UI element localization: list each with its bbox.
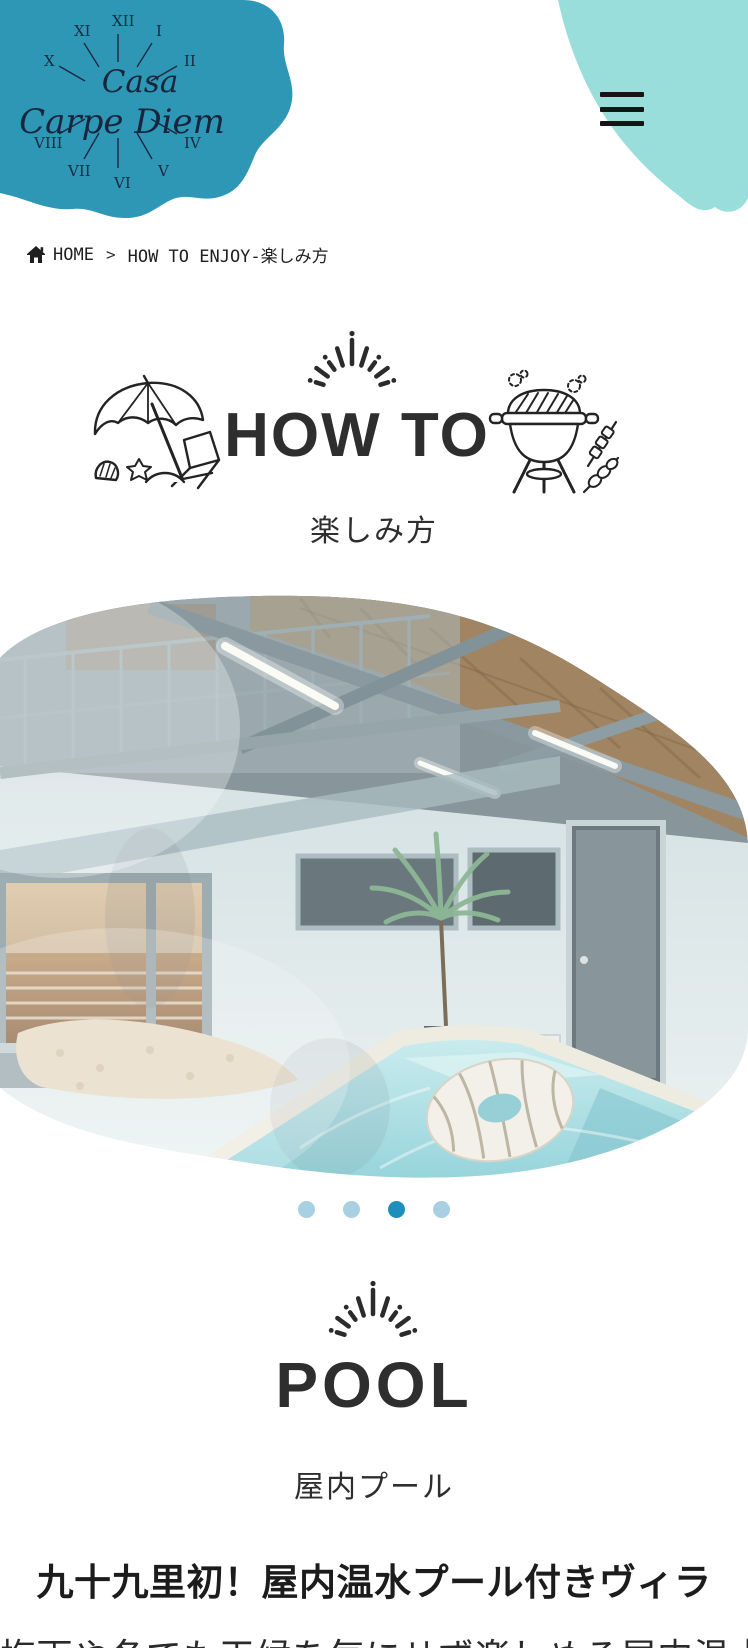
steam-icon [509,371,586,393]
brand-name-line1: Casa [102,64,179,100]
clock-numeral: VII [67,162,91,180]
clock-numeral: XII [112,12,135,30]
carousel-dot-1[interactable] [298,1201,315,1218]
sunburst-decoration [287,328,417,398]
header-left-blob: XII I II IV V VI VII VIII X XI Casa Carp… [0,0,300,225]
pool-description: 梅雨や冬でも天候を気にせず楽しめる屋内温水プール [0,1628,748,1648]
carousel-dot-3[interactable] [388,1201,405,1218]
clock-numeral: XI [74,22,91,40]
carousel-dot-4[interactable] [433,1201,450,1218]
clock-numeral: I [156,22,162,40]
hamburger-bar [600,92,644,97]
breadcrumb-separator: > [103,245,119,264]
breadcrumb: HOME > HOW TO ENJOY-楽しみ方 [26,242,329,267]
sunburst-decoration [308,1278,438,1348]
blob-shape [558,0,748,212]
page-title: HOW TO [0,400,731,471]
carousel-dots [0,1201,748,1218]
breadcrumb-home-label: HOME [53,245,94,265]
clock-numeral: V [157,162,170,180]
breadcrumb-current: HOW TO ENJOY-楽しみ方 [128,242,329,267]
skewer-icon [584,422,619,492]
brand-name-line2: Carpe Diem [19,102,225,142]
carousel-dot-2[interactable] [343,1201,360,1218]
hamburger-bar [600,121,644,126]
pool-headline: 九十九里初！屋内温水プール付きヴィラ [0,1552,748,1606]
clock-numeral: VI [113,174,131,192]
carousel-slide-pool-photo[interactable] [0,588,748,1180]
hamburger-menu-button[interactable] [599,90,645,128]
bbq-grill-icon [468,368,620,496]
page-subtitle: 楽しみ方 [0,506,748,550]
clock-numeral: X [44,52,55,70]
hamburger-bar [600,107,644,112]
home-icon [26,245,46,264]
section-subtitle-pool: 屋内プール [0,1462,748,1506]
page: XII I II IV V VI VII VIII X XI Casa Carp… [0,0,748,1648]
section-title-pool: POOL [0,1348,748,1422]
clock-numeral: II [184,52,196,70]
breadcrumb-home-link[interactable]: HOME [26,245,94,265]
